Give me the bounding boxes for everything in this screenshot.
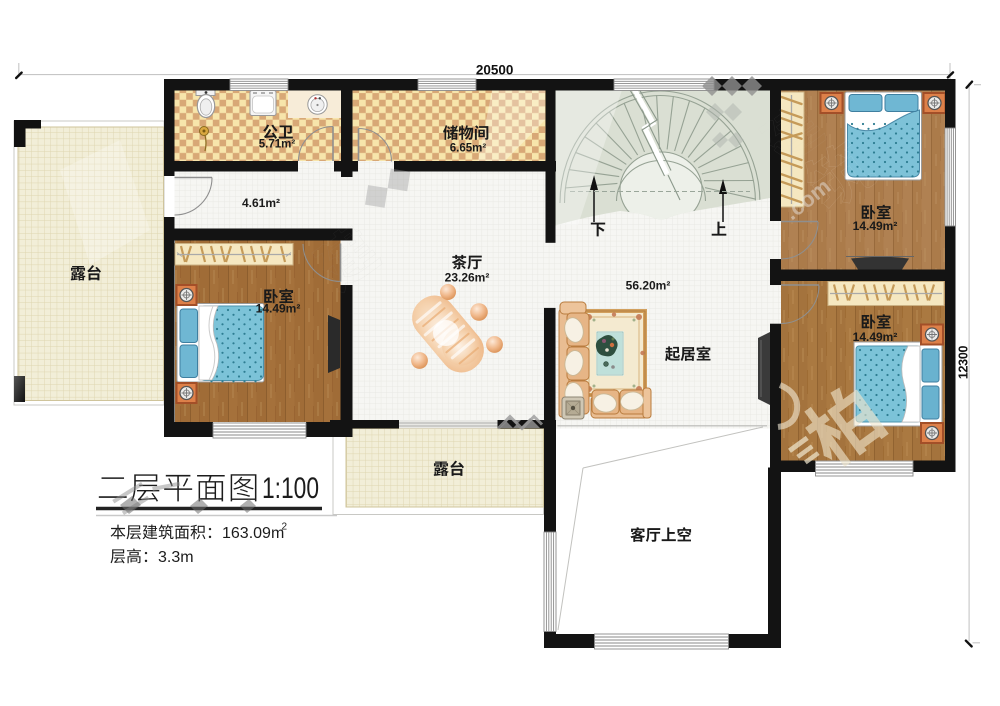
- svg-text:23.26m²: 23.26m²: [445, 271, 490, 285]
- svg-text:2: 2: [282, 522, 288, 533]
- svg-text:14.49m²: 14.49m²: [853, 219, 898, 233]
- svg-text:6.65m²: 6.65m²: [450, 143, 487, 155]
- svg-text:56.20m²: 56.20m²: [626, 279, 671, 293]
- svg-text:1:100: 1:100: [262, 472, 319, 505]
- svg-text:4.61m²: 4.61m²: [242, 196, 280, 210]
- svg-text:12300: 12300: [957, 346, 971, 380]
- svg-text:163.09m: 163.09m: [222, 525, 284, 542]
- svg-text:3.3m: 3.3m: [158, 549, 194, 566]
- svg-text:14.49m²: 14.49m²: [256, 302, 301, 316]
- svg-text:20500: 20500: [476, 63, 514, 78]
- svg-text:14.49m²: 14.49m²: [853, 330, 898, 344]
- svg-text:5.71m²: 5.71m²: [259, 139, 296, 151]
